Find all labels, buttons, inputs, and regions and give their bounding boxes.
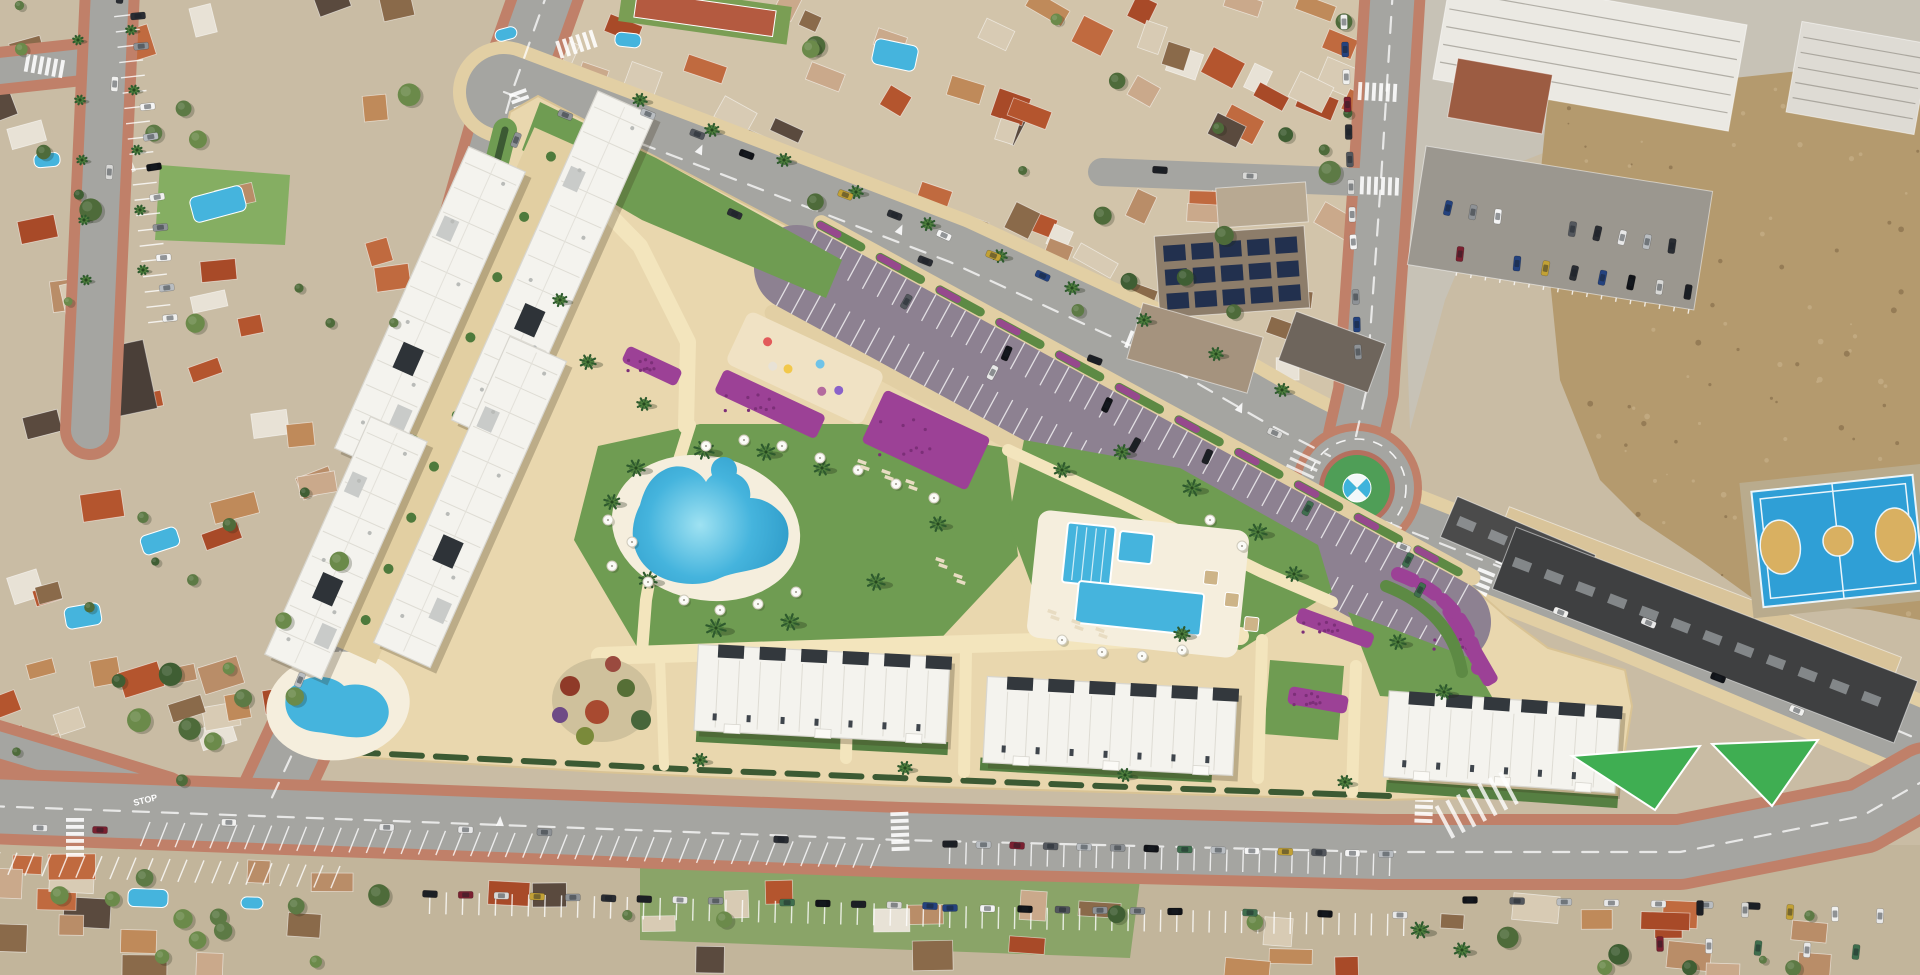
car bbox=[1346, 152, 1353, 167]
car bbox=[1043, 842, 1058, 850]
car bbox=[1130, 907, 1145, 914]
car bbox=[1651, 900, 1666, 907]
car bbox=[1177, 846, 1192, 853]
car bbox=[942, 840, 957, 847]
car bbox=[1493, 209, 1502, 225]
car bbox=[1341, 42, 1348, 57]
car bbox=[111, 76, 119, 91]
aerial-scene-svg: STOP bbox=[0, 0, 1920, 975]
car bbox=[32, 824, 47, 831]
car bbox=[1754, 940, 1763, 956]
car bbox=[1345, 124, 1352, 139]
car bbox=[458, 891, 473, 898]
car bbox=[1017, 905, 1032, 913]
car bbox=[1110, 844, 1125, 851]
car bbox=[162, 314, 178, 323]
car bbox=[1378, 850, 1393, 857]
car bbox=[1347, 179, 1354, 194]
aerial-photo: STOP bbox=[0, 0, 1920, 975]
car bbox=[1354, 344, 1362, 359]
car bbox=[1831, 906, 1838, 921]
car bbox=[1167, 908, 1182, 915]
car bbox=[105, 164, 113, 179]
car bbox=[1349, 234, 1357, 249]
car bbox=[1092, 907, 1107, 914]
car bbox=[1055, 906, 1070, 914]
car bbox=[601, 894, 616, 902]
car bbox=[1317, 910, 1332, 918]
commercial-hall-c bbox=[1216, 182, 1309, 228]
car bbox=[1513, 256, 1521, 272]
car bbox=[780, 899, 795, 906]
car bbox=[1076, 843, 1091, 851]
car bbox=[1786, 904, 1794, 919]
car bbox=[1852, 944, 1861, 960]
car bbox=[153, 223, 169, 231]
car bbox=[537, 828, 552, 836]
townhouse-row bbox=[694, 643, 952, 744]
car bbox=[1242, 909, 1257, 917]
sports-court bbox=[1739, 464, 1920, 618]
car bbox=[851, 901, 866, 908]
car bbox=[379, 824, 394, 831]
car bbox=[1456, 246, 1465, 262]
car bbox=[130, 12, 146, 20]
car bbox=[156, 254, 171, 262]
car bbox=[1343, 69, 1350, 84]
car bbox=[1009, 842, 1024, 850]
car bbox=[980, 905, 995, 912]
car bbox=[1340, 14, 1347, 29]
car bbox=[92, 826, 107, 833]
car bbox=[1152, 166, 1167, 174]
car bbox=[458, 826, 473, 834]
car bbox=[1349, 207, 1356, 222]
car bbox=[637, 895, 652, 903]
car bbox=[773, 836, 788, 844]
car bbox=[1705, 938, 1712, 953]
townhouse-row bbox=[983, 676, 1239, 777]
car bbox=[976, 841, 991, 848]
car bbox=[133, 42, 149, 50]
car bbox=[1278, 848, 1293, 855]
car bbox=[1353, 317, 1360, 332]
car bbox=[1345, 850, 1360, 857]
car bbox=[1392, 911, 1407, 918]
car bbox=[1242, 172, 1257, 180]
car bbox=[1876, 908, 1884, 923]
car bbox=[1557, 898, 1572, 905]
car bbox=[1311, 849, 1326, 857]
car bbox=[887, 901, 902, 909]
car bbox=[1696, 900, 1703, 915]
car bbox=[159, 283, 175, 292]
car bbox=[221, 819, 236, 826]
car bbox=[140, 102, 156, 111]
car bbox=[1741, 902, 1748, 917]
car bbox=[1352, 289, 1360, 304]
car bbox=[1344, 97, 1351, 112]
car bbox=[529, 893, 544, 901]
car bbox=[672, 896, 687, 904]
car bbox=[1211, 846, 1226, 854]
car bbox=[1604, 899, 1619, 906]
car bbox=[565, 894, 580, 901]
car bbox=[922, 902, 937, 910]
car bbox=[1803, 942, 1811, 957]
car bbox=[1462, 896, 1477, 903]
car bbox=[1656, 936, 1663, 951]
car bbox=[1510, 897, 1525, 904]
car bbox=[708, 897, 723, 904]
car bbox=[422, 890, 437, 898]
car bbox=[494, 892, 509, 899]
car bbox=[942, 904, 957, 911]
car bbox=[1144, 845, 1159, 853]
car bbox=[815, 900, 830, 907]
car bbox=[1244, 847, 1259, 854]
